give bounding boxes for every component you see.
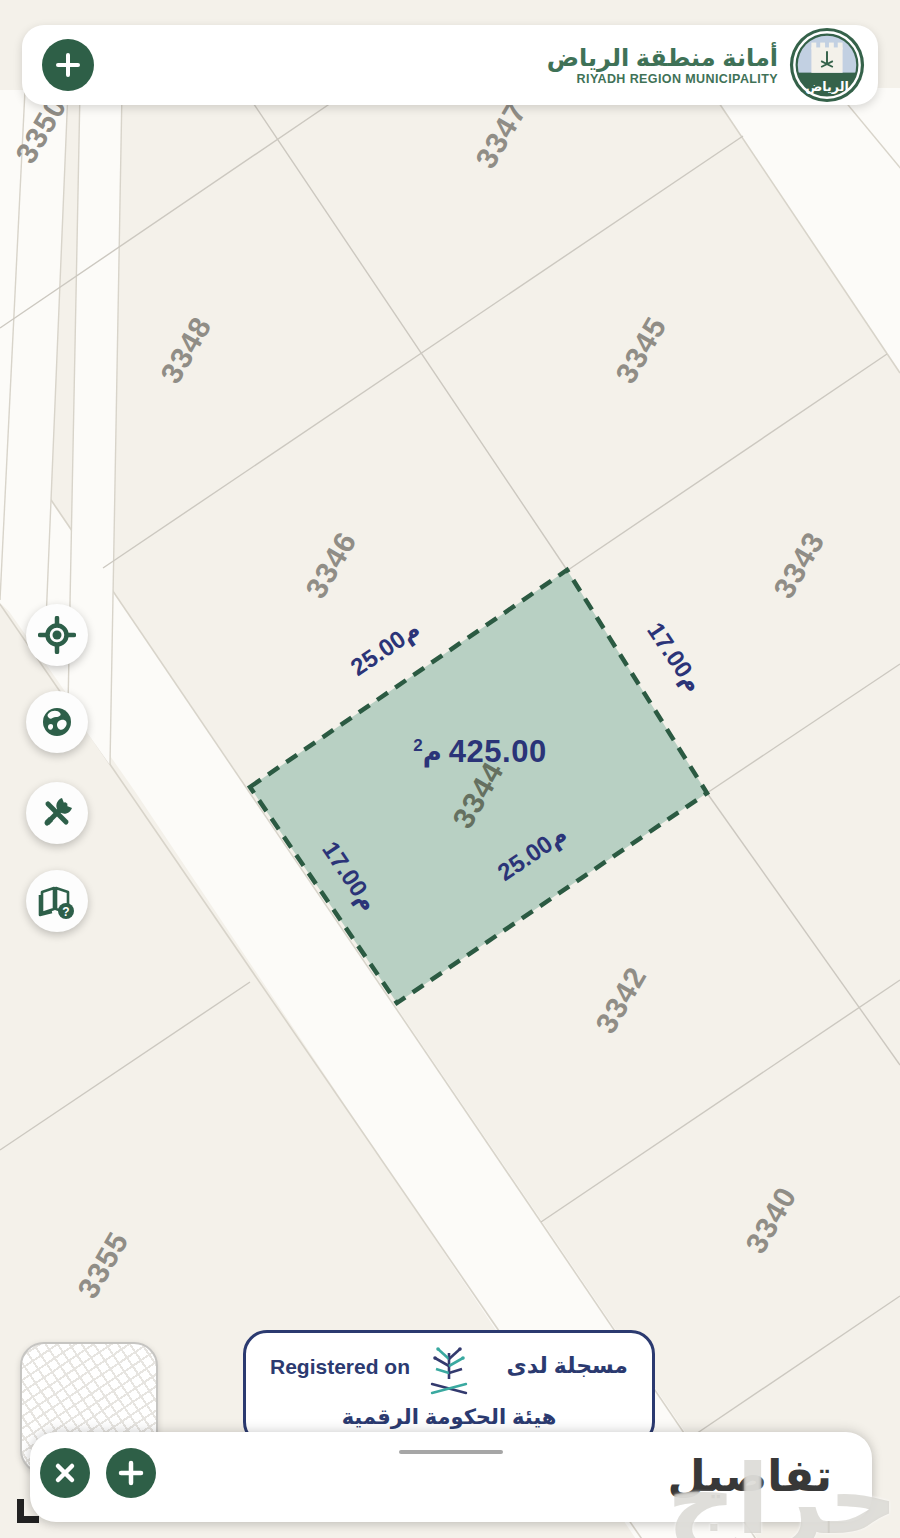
header-bar: أمانة منطقة الرياض RIYADH REGION MUNICIP…: [22, 25, 878, 105]
add-parcel-button[interactable]: [106, 1448, 156, 1498]
header-titles: أمانة منطقة الرياض RIYADH REGION MUNICIP…: [547, 44, 778, 86]
help-book-icon: ?: [37, 881, 77, 921]
svg-text:الرياض: الرياض: [805, 79, 849, 94]
details-sheet: تفاصيل: [30, 1432, 872, 1522]
area-value: 425.00: [449, 736, 547, 767]
map-canvas[interactable]: 3350 3347 3348 3345 3346 3343 3342 3340 …: [0, 0, 900, 1538]
locate-button[interactable]: [26, 604, 88, 666]
globe-button[interactable]: [26, 691, 88, 753]
details-label[interactable]: تفاصيل: [668, 1450, 832, 1501]
drag-handle[interactable]: [399, 1450, 503, 1454]
locate-icon: [38, 616, 76, 654]
municipality-logo: الرياض: [788, 26, 866, 104]
parcel-area-label: 2م425.00: [413, 739, 546, 767]
registered-on-label: Registered on: [270, 1355, 410, 1379]
plus-icon: [118, 1460, 144, 1486]
svg-text:?: ?: [62, 905, 69, 919]
close-button[interactable]: [40, 1448, 90, 1498]
close-icon: [53, 1461, 77, 1485]
globe-icon: [39, 704, 75, 740]
tools-icon: [38, 794, 76, 832]
area-superscript: 2: [413, 737, 422, 754]
help-button[interactable]: ?: [26, 870, 88, 932]
add-button[interactable]: [42, 39, 94, 91]
municipality-title-ar: أمانة منطقة الرياض: [547, 44, 778, 72]
area-unit: م: [423, 739, 442, 765]
authority-name: هيئة الحكومة الرقمية: [246, 1405, 652, 1429]
registered-card: Registered on مسجلة لدى هيئة الحكومة الر…: [243, 1330, 655, 1446]
plus-icon: [55, 52, 81, 78]
municipality-title-en: RIYADH REGION MUNICIPALITY: [547, 72, 778, 86]
tools-button[interactable]: [26, 782, 88, 844]
dga-logo: [420, 1339, 478, 1403]
registered-with-label: مسجلة لدى: [507, 1353, 628, 1379]
